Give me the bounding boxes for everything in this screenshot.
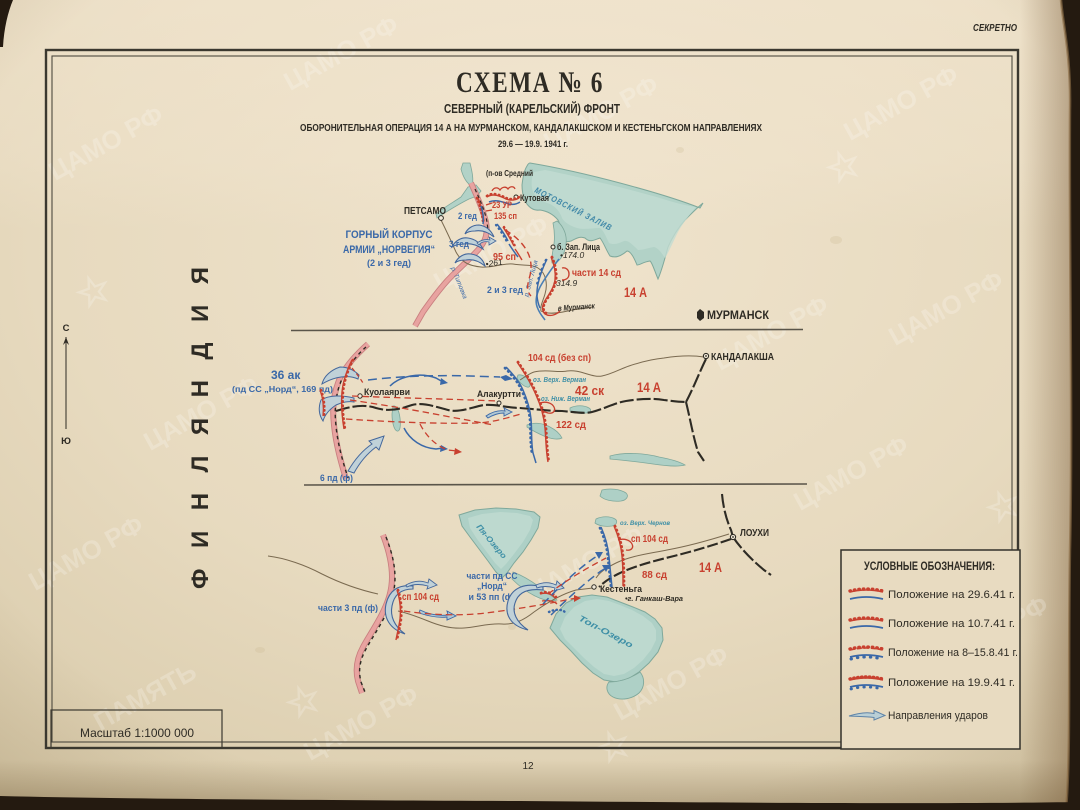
svg-text:С: С bbox=[63, 323, 70, 334]
svg-text:ФИНЛЯНДИЯ: ФИНЛЯНДИЯ bbox=[187, 267, 214, 589]
svg-text:МУРМАНСК: МУРМАНСК bbox=[707, 308, 770, 322]
svg-text:2 и 3 гед: 2 и 3 гед bbox=[487, 285, 523, 296]
svg-text:СЕКРЕТНО: СЕКРЕТНО bbox=[973, 22, 1017, 34]
svg-text:Положение на 19.9.41 г.: Положение на 19.9.41 г. bbox=[888, 677, 1015, 689]
svg-text:Куолаярви: Куолаярви bbox=[364, 387, 410, 398]
svg-text:29.6 — 19.9. 1941 г.: 29.6 — 19.9. 1941 г. bbox=[498, 139, 568, 150]
svg-text:АРМИИ „НОРВЕГИЯ“: АРМИИ „НОРВЕГИЯ“ bbox=[343, 244, 435, 256]
svg-text:сп 104 сд: сп 104 сд bbox=[402, 592, 440, 603]
svg-text:95 сп: 95 сп bbox=[493, 252, 516, 263]
svg-text:„Норд“: „Норд“ bbox=[477, 581, 507, 591]
svg-text:части пд СС: части пд СС bbox=[467, 571, 518, 581]
svg-text:Положение на 8–15.8.41 г.: Положение на 8–15.8.41 г. bbox=[888, 647, 1018, 659]
svg-text:(2 и 3 гед): (2 и 3 гед) bbox=[367, 258, 411, 268]
svg-text:Положение на 29.6.41 г.: Положение на 29.6.41 г. bbox=[888, 589, 1015, 601]
svg-text:(п-ов Средний: (п-ов Средний bbox=[486, 168, 533, 178]
svg-text:2 гед: 2 гед bbox=[458, 211, 477, 222]
svg-text:•г. Ганкаш-Вара: •г. Ганкаш-Вара bbox=[625, 594, 683, 603]
svg-text:3 гед: 3 гед bbox=[449, 239, 469, 250]
svg-text:ЛОУХИ: ЛОУХИ bbox=[740, 527, 769, 539]
svg-text:Кутовая: Кутовая bbox=[520, 193, 549, 204]
svg-text:12: 12 bbox=[522, 761, 534, 772]
svg-text:135 сп: 135 сп bbox=[494, 211, 517, 222]
svg-text:122 сд: 122 сд bbox=[556, 420, 587, 431]
svg-text:Направления ударов: Направления ударов bbox=[888, 710, 988, 722]
svg-text:104 сд (без сп): 104 сд (без сп) bbox=[528, 352, 591, 364]
svg-text:СЕВЕРНЫЙ (КАРЕЛЬСКИЙ) ФРОНТ: СЕВЕРНЫЙ (КАРЕЛЬСКИЙ) ФРОНТ bbox=[444, 101, 620, 116]
svg-text:оз. Верх. Чернов: оз. Верх. Чернов bbox=[620, 520, 670, 527]
svg-text:23 УР: 23 УР bbox=[492, 200, 513, 211]
svg-text:УСЛОВНЫЕ ОБОЗНАЧЕНИЯ:: УСЛОВНЫЕ ОБОЗНАЧЕНИЯ: bbox=[864, 561, 995, 573]
svg-text:42 ск: 42 ск bbox=[575, 383, 604, 398]
svg-text:ГОРНЫЙ КОРПУС: ГОРНЫЙ КОРПУС bbox=[346, 228, 433, 241]
svg-text:14 А: 14 А bbox=[637, 380, 661, 395]
svg-text:Ю: Ю bbox=[61, 436, 71, 447]
svg-text:ПЕТСАМО: ПЕТСАМО bbox=[404, 205, 446, 217]
svg-text:Алакуртти: Алакуртти bbox=[477, 389, 521, 400]
svg-text:14 А: 14 А bbox=[699, 560, 722, 575]
svg-text:части 3 пд (ф): части 3 пд (ф) bbox=[318, 603, 378, 614]
svg-text:•174.0: •174.0 bbox=[560, 250, 585, 260]
svg-text:ОБОРОНИТЕЛЬНАЯ ОПЕРАЦИЯ 14 А Н: ОБОРОНИТЕЛЬНАЯ ОПЕРАЦИЯ 14 А НА МУРМАНСК… bbox=[300, 122, 762, 134]
svg-text:(пд СС „Норд“, 169 пд): (пд СС „Норд“, 169 пд) bbox=[232, 384, 333, 394]
svg-text:КАНДАЛАКША: КАНДАЛАКША bbox=[711, 351, 774, 363]
svg-text:6 пд (ф): 6 пд (ф) bbox=[320, 473, 353, 483]
svg-text:части 14 сд: части 14 сд bbox=[572, 267, 621, 279]
svg-text:СХЕМА № 6: СХЕМА № 6 bbox=[456, 66, 604, 99]
svg-text:сп 104 сд: сп 104 сд bbox=[631, 534, 669, 545]
svg-text:Масштаб 1:1000 000: Масштаб 1:1000 000 bbox=[80, 726, 194, 740]
svg-text:Положение на 10.7.41 г.: Положение на 10.7.41 г. bbox=[888, 618, 1015, 630]
svg-text:88 сд: 88 сд bbox=[642, 570, 668, 581]
svg-text:36 ак: 36 ак bbox=[271, 368, 301, 382]
svg-text:14 А: 14 А bbox=[624, 285, 647, 300]
